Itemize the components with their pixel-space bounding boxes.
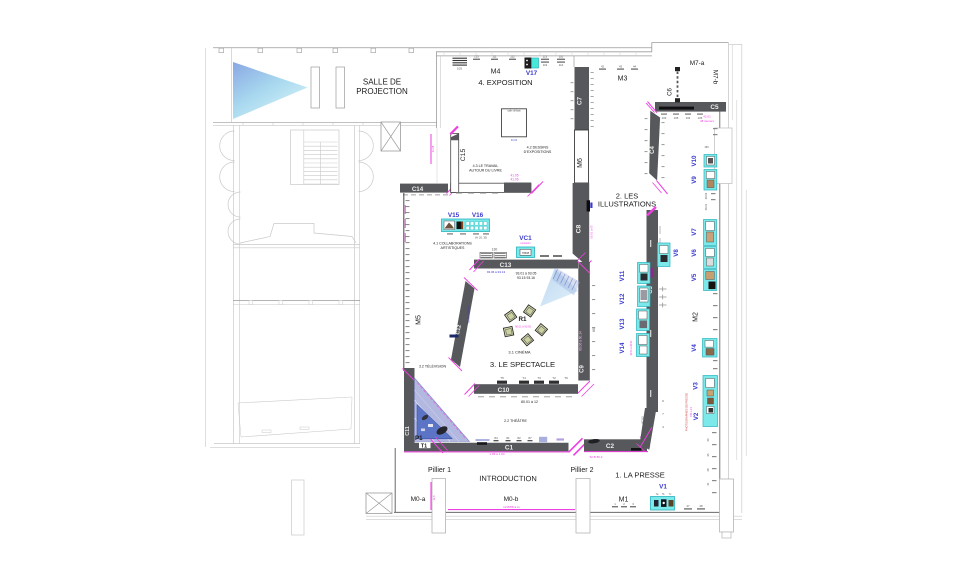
svg-text:103: 103 [662,116,667,120]
svg-text:C11: C11 [405,426,411,436]
svg-text:V4: V4 [691,344,698,352]
svg-text:V14: V14 [619,342,626,354]
svg-text:97.02: 97.02 [641,416,645,424]
svg-text:114: 114 [559,63,564,67]
svg-text:C9: C9 [580,365,586,373]
svg-text:M7-b: M7-b [712,70,719,85]
svg-text:V5: V5 [691,273,698,281]
svg-text:60: 60 [592,328,596,332]
svg-text:60.01 à 05: 60.01 à 05 [589,225,593,239]
svg-text:M0-a: M0-a [411,496,426,503]
svg-text:M6: M6 [577,158,584,168]
svg-text:28: 28 [699,504,703,508]
svg-text:48 deniers: 48 deniers [700,119,715,123]
svg-text:78608: 78608 [522,251,530,255]
svg-text:V7: V7 [691,228,698,236]
svg-text:87: 87 [528,436,532,440]
svg-text:06.01: 06.01 [704,203,708,210]
svg-text:60.06 à 60.14: 60.06 à 60.14 [579,331,583,351]
svg-text:C8: C8 [576,224,583,233]
svg-text:V12: V12 [619,293,626,305]
svg-text:1. LA PRESSE: 1. LA PRESSE [615,471,665,480]
svg-text:V9: V9 [691,176,698,184]
svg-text:42.01: 42.01 [703,115,711,119]
svg-text:V13: V13 [619,318,626,330]
svg-text:70.01 à 70.04: 70.01 à 70.04 [467,306,471,324]
svg-text:C14: C14 [412,186,424,193]
svg-text:12.6: 12.6 [432,495,436,501]
svg-text:salle débats: salle débats [507,110,521,113]
svg-text:44: 44 [633,64,637,68]
svg-text:123: 123 [474,55,479,59]
svg-text:V6: V6 [691,249,698,257]
svg-text:V10: V10 [691,155,698,167]
svg-text:M7-a: M7-a [690,60,705,67]
svg-text:41.06: 41.06 [511,178,519,182]
svg-text:V2: V2 [693,412,700,420]
svg-text:3.1 CINÉMA: 3.1 CINÉMA [508,350,531,355]
svg-text:T2: T2 [552,376,556,380]
svg-text:700.1 à 9: 700.1 à 9 [690,406,693,417]
svg-text:06.03: 06.03 [704,192,708,199]
svg-text:41.08: 41.08 [431,145,435,152]
svg-text:81: 81 [506,436,510,440]
svg-text:27: 27 [686,504,690,508]
svg-text:93.06 à 93.13: 93.06 à 93.13 [487,270,506,274]
svg-text:V16: V16 [472,212,484,219]
svg-text:V17: V17 [526,70,538,77]
svg-text:119: 119 [543,63,548,67]
svg-text:52.B 80.2: 52.B 80.2 [590,455,603,459]
svg-text:3.2 TÉLÉVISION: 3.2 TÉLÉVISION [419,364,447,369]
svg-text:T6: T6 [564,376,568,380]
svg-text:T4: T4 [522,376,526,380]
svg-text:130: 130 [492,248,498,252]
svg-text:84: 84 [494,436,498,440]
svg-text:D'EXPOSITIONS: D'EXPOSITIONS [524,150,552,154]
svg-text:V11: V11 [619,270,626,281]
svg-text:T1: T1 [421,443,427,449]
svg-text:émission: émission [520,241,531,245]
svg-text:C6: C6 [668,88,674,96]
svg-text:C1: C1 [505,444,514,451]
svg-text:(H: 20, 30): (H: 20, 30) [475,236,487,240]
svg-text:ARTISTIQUES: ARTISTIQUES [441,246,465,250]
svg-text:105: 105 [457,67,462,71]
svg-text:09.01 à 09.04: 09.01 à 09.04 [630,340,633,355]
svg-text:ILLUSTRATIONS: ILLUSTRATIONS [598,200,656,209]
svg-text:M3: M3 [618,76,628,83]
svg-text:40.02: 40.02 [511,139,518,142]
svg-text:T3: T3 [537,376,541,380]
svg-text:C7: C7 [577,96,584,105]
svg-text:INTRODUCTION: INTRODUCTION [479,474,537,483]
svg-text:R1: R1 [518,316,527,323]
svg-text:112: 112 [510,55,515,59]
svg-text:P1: P1 [415,435,423,442]
svg-text:V1: V1 [659,484,667,491]
svg-text:C10: C10 [498,387,510,394]
svg-text:PROJECTION: PROJECTION [356,87,408,96]
svg-text:93.01 à 93.05: 93.01 à 93.05 [516,272,537,276]
svg-text:4. EXPOSITION: 4. EXPOSITION [478,78,532,87]
svg-text:M0-b: M0-b [504,496,519,503]
svg-text:42: 42 [601,64,605,68]
svg-text:M5: M5 [416,315,423,325]
svg-text:PHOTOGRAPHIES DE PRESSE: PHOTOGRAPHIES DE PRESSE [685,393,689,431]
svg-text:Pillier 1: Pillier 1 [428,467,451,474]
svg-text:Pillier 2: Pillier 2 [571,467,594,474]
svg-text:SALLE DE: SALLE DE [363,78,401,87]
svg-text:150: 150 [704,145,709,149]
svg-text:C4: C4 [650,146,656,154]
svg-text:V15: V15 [448,212,460,219]
svg-text:104: 104 [686,116,691,120]
svg-text:4.3 LE TRAVAIL: 4.3 LE TRAVAIL [473,164,499,168]
svg-text:90.01 à 90.05: 90.01 à 90.05 [515,325,531,329]
svg-text:C15: C15 [460,149,467,162]
svg-text:93.15 93.16: 93.15 93.16 [517,276,535,280]
svg-text:105: 105 [674,116,679,120]
svg-text:1.05 à 1.64: 1.05 à 1.64 [489,452,504,456]
svg-text:C13: C13 [500,262,512,269]
svg-text:80.01 à 12: 80.01 à 12 [521,400,538,404]
svg-text:4.2 DESSINS: 4.2 DESSINS [527,146,549,150]
svg-text:82: 82 [517,436,521,440]
svg-text:V8: V8 [673,249,680,257]
svg-text:111: 111 [492,55,497,59]
svg-text:110: 110 [559,55,564,59]
svg-text:12.B/88 à xx: 12.B/88 à xx [503,505,520,509]
svg-text:T5: T5 [500,376,504,380]
svg-text:2.2 THÉÂTRE: 2.2 THÉÂTRE [504,418,527,423]
svg-text:M2: M2 [693,312,700,322]
svg-text:V3: V3 [693,382,700,390]
svg-text:C5: C5 [710,104,719,111]
svg-text:4.1 COLLABORATIONS: 4.1 COLLABORATIONS [433,242,472,246]
svg-text:AUTOUR DU LIVRE: AUTOUR DU LIVRE [469,169,502,173]
svg-text:M4: M4 [491,69,501,76]
svg-text:3. LE SPECTACLE: 3. LE SPECTACLE [490,360,555,369]
svg-text:43: 43 [619,64,623,68]
svg-text:C2: C2 [606,443,615,450]
svg-text:113: 113 [543,55,548,59]
